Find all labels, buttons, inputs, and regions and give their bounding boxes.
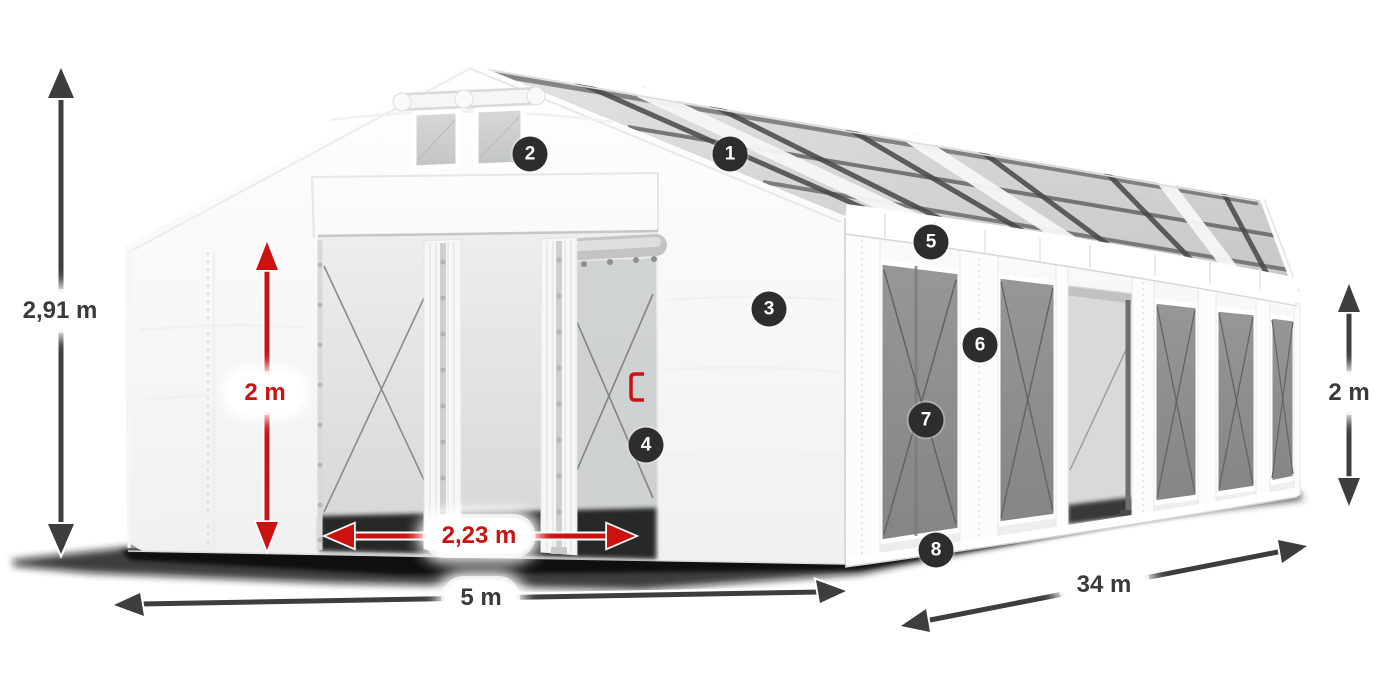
callout-badge-7[interactable]: 7 <box>909 403 944 438</box>
folded-door-right <box>541 237 577 555</box>
dimension-front-width: 5 m <box>445 580 516 616</box>
dimension-total-height: 2,91 m <box>8 293 113 329</box>
dimension-door-height: 2 m <box>229 375 300 411</box>
side-window-1 <box>880 262 960 542</box>
side-window-2 <box>998 276 1056 524</box>
callout-badge-5[interactable]: 5 <box>914 225 949 260</box>
side-window-4 <box>1216 309 1256 494</box>
dimension-side-length: 34 m <box>1062 567 1147 603</box>
side-wall <box>845 214 1300 567</box>
dimension-door-width: 2,23 m <box>427 518 532 554</box>
side-window-3 <box>1154 301 1198 503</box>
side-open-bay <box>1068 285 1136 524</box>
tent-dimension-diagram: 2,91 m 2 m 2,23 m 5 m 34 m 2 m 1 2 3 4 5… <box>0 0 1400 700</box>
callout-badge-4[interactable]: 4 <box>629 428 664 463</box>
callout-badge-3[interactable]: 3 <box>752 292 787 327</box>
side-window-5 <box>1270 316 1295 483</box>
callout-badge-2[interactable]: 2 <box>513 137 548 172</box>
front-door-opening <box>318 231 659 559</box>
tent-illustration <box>0 0 1400 700</box>
folded-door-left <box>424 239 461 552</box>
callout-badge-1[interactable]: 1 <box>713 137 748 172</box>
dimension-side-height: 2 m <box>1313 375 1384 411</box>
callout-badge-8[interactable]: 8 <box>919 533 954 568</box>
callout-badge-6[interactable]: 6 <box>963 328 998 363</box>
